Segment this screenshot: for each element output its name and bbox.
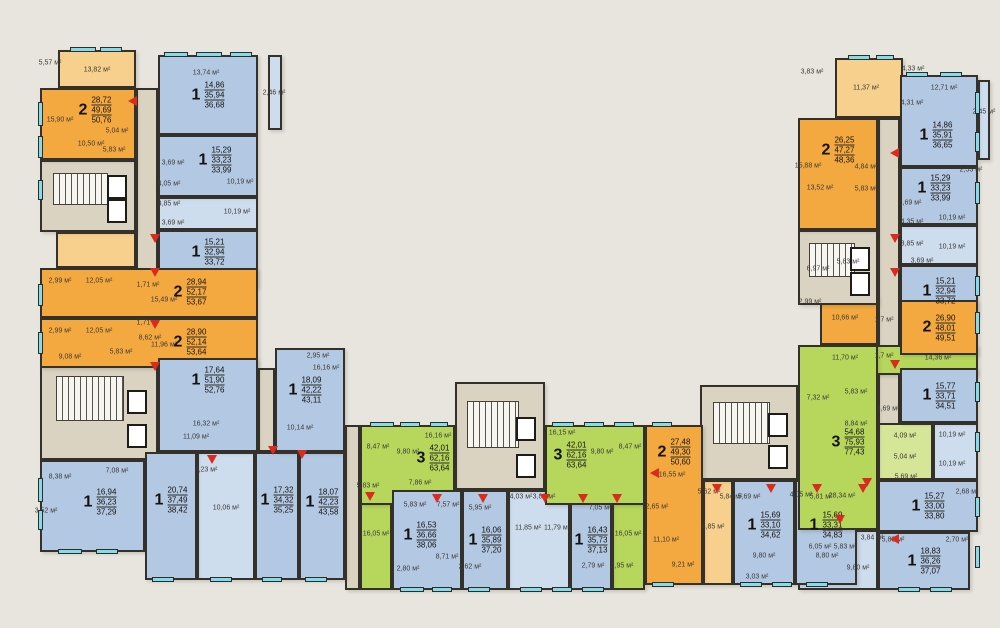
room-area-label: 5,83 м² <box>404 502 427 509</box>
window-strip <box>652 582 674 587</box>
apartment-label: 116,9436,2337,29 <box>84 488 117 517</box>
apartment-label: 115,2933,2333,99 <box>918 174 951 203</box>
apartment-room-count: 1 <box>192 86 201 104</box>
room-area-label: 3,03 м² <box>746 574 769 581</box>
apartment-area-value: 28,72 <box>91 96 111 105</box>
apartment-areas: 17,3234,3235,25 <box>273 486 293 515</box>
apartment-areas: 28,7249,6950,76 <box>91 96 111 125</box>
elevator-icon <box>850 272 870 296</box>
apartment-area-value: 34,83 <box>822 530 842 540</box>
room-area-label: 3,69 м² <box>911 258 934 265</box>
room-area-label: 4,31 м² <box>901 100 924 107</box>
apartment-area-value: 50,76 <box>91 115 111 125</box>
apartment-area-value: 35,89 <box>481 535 501 545</box>
window-strip <box>432 587 452 592</box>
room-area-label: 11,37 м² <box>853 85 879 92</box>
apartment-area-value: 27,48 <box>670 438 690 447</box>
room-area-label: 3,85 м² <box>901 241 924 248</box>
apartment-room-count: 2 <box>174 333 183 351</box>
window-strip <box>652 422 672 427</box>
room-area-label: 2,99 м² <box>799 299 822 306</box>
window-strip <box>975 312 980 334</box>
apartment-room-count: 1 <box>920 126 929 144</box>
apartment-area-value: 35,73 <box>587 535 607 545</box>
apartment-area-value: 36,66 <box>416 530 436 540</box>
apartment-area-value: 42,23 <box>318 497 338 507</box>
entrance-arrow-icon <box>890 268 900 277</box>
room-area-label: 13,74 м² <box>193 70 220 77</box>
window-strip <box>614 422 634 427</box>
apartment-areas: 27,4849,3050,60 <box>670 438 690 467</box>
entrance-arrow-icon <box>812 484 822 493</box>
apartment-label: 116,0635,8937,20 <box>469 526 502 555</box>
room-area-label: 8,38 м² <box>49 474 72 481</box>
apartment-area-value: 18,09 <box>301 376 321 385</box>
apartment-area-value: 15,27 <box>924 492 944 501</box>
apartment-area-value: 48,01 <box>935 322 955 332</box>
window-strip <box>38 180 43 200</box>
room-area-label: 3,69 м² <box>877 406 900 413</box>
apartment-label: 228,7249,6950,76 <box>79 96 112 125</box>
apartment-area-value: 26,25 <box>834 136 854 145</box>
apartment-areas: 42,0162,1663,64 <box>429 444 449 473</box>
room-area-label: 8,62 м² <box>139 335 162 342</box>
room-area-label: 4,85 м² <box>702 524 725 531</box>
apartment-area-value: 32,94 <box>204 247 224 257</box>
room-area-label: 16,16 м² <box>313 365 340 372</box>
entrance-arrow-icon <box>150 320 160 329</box>
apartment-areas: 54,6875,9377,43 <box>844 428 864 457</box>
room-area-label: 5,04 м² <box>894 454 917 461</box>
apartment-area-value: 38,06 <box>416 540 436 550</box>
window-strip <box>975 92 980 114</box>
apartment-areas: 15,2933,2333,99 <box>211 146 231 175</box>
apartment-area-value: 77,43 <box>844 447 864 457</box>
room-area-label: 4,84 м² <box>855 164 878 171</box>
elevator-icon <box>768 413 788 437</box>
window-strip <box>740 582 762 587</box>
apartment-area-value: 52,14 <box>186 337 206 347</box>
apartment-areas: 15,6933,1034,62 <box>760 511 780 540</box>
apartment-label: 114,8635,9136,65 <box>920 121 953 150</box>
entrance-arrow-icon <box>835 515 845 524</box>
apartment-label: 115,6933,1034,62 <box>748 511 781 540</box>
window-strip <box>552 587 572 592</box>
room-area-label: 14,36 м² <box>925 355 952 362</box>
apartment-room-count: 1 <box>289 381 298 399</box>
apartment-area-value: 28,90 <box>186 328 206 337</box>
window-strip <box>305 577 327 582</box>
window-strip <box>898 587 920 592</box>
window-strip <box>38 284 43 306</box>
elevator-icon <box>516 454 536 478</box>
room-area-label: 9,80 м² <box>753 553 776 560</box>
room-area-label: 10,19 м² <box>939 244 966 251</box>
apartment-area-value: 16,43 <box>587 526 607 535</box>
apartment-area-value: 15,77 <box>935 381 955 390</box>
apartment-area-value: 37,29 <box>96 507 116 517</box>
apartment-area-value: 63,64 <box>566 460 586 470</box>
apartment-area-value: 42,01 <box>429 444 449 453</box>
apartment-area-value: 36,26 <box>920 556 940 566</box>
room-area-label: 12,71 м² <box>931 85 958 92</box>
apartment-area-value: 28,94 <box>186 278 206 287</box>
apartment-area-value: 20,74 <box>167 486 187 495</box>
apartment-area-value: 18,83 <box>920 547 940 556</box>
room-area-label: 10,66 м² <box>832 315 859 322</box>
apartment-area-value: 52,17 <box>186 287 206 297</box>
apartment-area-value: 33,71 <box>935 390 955 400</box>
apartment-area-value: 37,07 <box>920 566 940 576</box>
apartment-area-value: 33,72 <box>935 296 955 306</box>
apartment-area-value: 34,51 <box>935 400 955 410</box>
apartment-room-count: 1 <box>306 493 315 511</box>
zone-block <box>258 368 275 452</box>
window-strip <box>468 587 490 592</box>
apartment-area-value: 48,36 <box>834 155 854 165</box>
apartment-area-value: 15,21 <box>935 277 955 286</box>
apartment-label: 115,2132,9433,72 <box>192 238 225 267</box>
apartment-label: 342,0162,1663,64 <box>417 444 450 473</box>
apartment-area-value: 54,68 <box>844 428 864 437</box>
window-strip <box>38 136 43 158</box>
entrance-arrow-icon <box>150 362 160 371</box>
room-area-label: 8,80 м² <box>816 553 839 560</box>
apartment-area-value: 16,06 <box>481 526 501 535</box>
apartment-room-count: 1 <box>923 282 932 300</box>
room-area-label: 6,97 м² <box>807 266 830 273</box>
apartment-area-value: 42,01 <box>566 441 586 450</box>
apartment-areas: 15,2132,9433,72 <box>204 238 224 267</box>
apartment-room-count: 1 <box>908 552 917 570</box>
apartment-1-room-unit-9[interactable] <box>145 452 197 580</box>
room-area-label: 10,19 м² <box>939 432 966 439</box>
apartment-area-value: 53,67 <box>186 297 206 307</box>
apartment-areas: 26,9048,0149,51 <box>935 313 955 342</box>
window-strip <box>975 276 980 296</box>
apartment-area-value: 36,68 <box>204 100 224 110</box>
window-strip <box>584 422 604 427</box>
apartment-label: 118,0742,2343,58 <box>306 488 339 517</box>
room-area-label: 4,09 м² <box>894 433 917 440</box>
room-area-label: 2,46 м² <box>263 90 286 97</box>
apartment-areas: 17,6451,9052,76 <box>204 366 224 395</box>
apartment-area-value: 32,94 <box>935 286 955 296</box>
apartment-area-value: 33,10 <box>760 520 780 530</box>
apartment-room-count: 2 <box>658 443 667 461</box>
apartment-area-value: 33,72 <box>204 257 224 267</box>
stairs-icon <box>467 401 519 449</box>
room-area-label: 9,21 м² <box>672 562 695 569</box>
apartment-label: 116,5336,6638,06 <box>404 521 437 550</box>
apartment-area-value: 33,00 <box>924 501 944 511</box>
apartment-area-value: 34,62 <box>760 530 780 540</box>
apartment-area-value: 34,32 <box>273 495 293 505</box>
apartment-area-value: 33,23 <box>930 183 950 193</box>
room-area-label: 2,68 м² <box>956 489 979 496</box>
apartment-label: 116,4335,7337,13 <box>575 526 608 555</box>
entrance-arrow-icon <box>766 484 776 493</box>
apartment-room-count: 1 <box>84 493 93 511</box>
apartment-label: 228,9052,1453,64 <box>174 328 207 357</box>
apartment-room-count: 1 <box>575 531 584 549</box>
apartment-area-value: 15,21 <box>204 238 224 247</box>
apartment-area-value: 33,23 <box>211 155 231 165</box>
apartment-room-count: 2 <box>923 319 932 337</box>
elevator-icon <box>107 175 127 199</box>
room-area-label: 5,83 м² <box>110 349 133 356</box>
stair-core <box>40 160 136 232</box>
room-area-label: 5,04 м² <box>106 128 129 135</box>
apartment-area-value: 33,99 <box>930 193 950 203</box>
apartment-area-value: 15,29 <box>930 174 950 183</box>
entrance-arrow-icon <box>540 494 550 503</box>
room-area-label: 16,05 м² <box>615 531 642 538</box>
apartment-room-count: 1 <box>912 497 921 515</box>
entrance-arrow-icon <box>862 478 872 487</box>
room-area-label: 11,09 м² <box>183 434 209 441</box>
apartment-area-value: 33,99 <box>211 165 231 175</box>
window-strip <box>38 102 43 126</box>
apartment-areas: 18,0742,2343,58 <box>318 488 338 517</box>
room-area-label: 7,08 м² <box>106 468 129 475</box>
apartment-label: 120,7437,4938,42 <box>155 486 188 515</box>
stairs-icon <box>56 376 124 421</box>
room-area-label: 1,71 м² <box>137 282 160 289</box>
apartment-areas: 14,8635,9136,65 <box>932 121 952 150</box>
apartment-label: 228,9452,1753,67 <box>174 278 207 307</box>
apartment-label: 354,6875,9377,43 <box>832 428 865 457</box>
apartment-area-value: 47,27 <box>834 145 854 155</box>
window-strip <box>38 332 43 354</box>
room-area-label: 3,85 м² <box>158 201 181 208</box>
apartment-area-value: 49,51 <box>935 332 955 342</box>
room-area-label: 4,35 м² <box>901 219 924 226</box>
apartment-label: 117,6451,9052,76 <box>192 366 225 395</box>
apartment-room-count: 1 <box>192 371 201 389</box>
window-strip <box>975 132 980 152</box>
room-area-label: 11,10 м² <box>653 537 679 544</box>
room-area-label: 9,08 м² <box>59 354 82 361</box>
room-area-label: 2,65 м² <box>646 504 669 511</box>
room-area-label: 8,47 м² <box>367 444 390 451</box>
room-area-label: 12,05 м² <box>86 278 113 285</box>
window-strip <box>164 52 188 57</box>
apartment-areas: 16,9436,2337,29 <box>96 488 116 517</box>
elevator-icon <box>107 199 127 223</box>
entrance-arrow-icon <box>365 492 375 501</box>
window-strip <box>196 52 222 57</box>
room-area-label: 7,86 м² <box>409 480 432 487</box>
window-strip <box>370 422 394 427</box>
room-area-label: 9,80 м² <box>847 565 870 572</box>
apartment-area-value: 36,65 <box>932 140 952 150</box>
apartment-label: 118,0942,2243,11 <box>289 376 322 405</box>
entrance-arrow-icon <box>712 484 722 493</box>
room-area-label: 5,83 м² <box>103 147 126 154</box>
apartment-room-count: 1 <box>923 387 932 405</box>
apartment-area-value: 33,80 <box>924 511 944 521</box>
room-area-label: 7,05 м² <box>589 505 612 512</box>
room-area-label: 15,88 м² <box>795 163 822 170</box>
room-area-label: 2,70 м² <box>946 537 969 544</box>
room-area-label: 9,80 м² <box>591 449 614 456</box>
entrance-arrow-icon <box>890 148 899 158</box>
room-area-label: 13,52 м² <box>807 185 834 192</box>
apartment-area-value: 15,29 <box>211 146 231 155</box>
apartment-room-count: 1 <box>748 516 757 534</box>
room-area-label: 10,19 м² <box>939 215 966 222</box>
room-area-label: 16,15 м² <box>549 430 576 437</box>
apartment-label: 115,7733,7134,51 <box>923 381 956 410</box>
room-area-label: 2,80 м² <box>397 566 420 573</box>
room-area-label: 13,82 м² <box>84 67 111 74</box>
apartment-room-count: 3 <box>832 433 841 451</box>
apartment-area-value: 49,69 <box>91 105 111 115</box>
apartment-areas: 28,9452,1753,67 <box>186 278 206 307</box>
window-strip <box>582 587 604 592</box>
stair-core <box>455 382 545 490</box>
entrance-arrow-icon <box>297 450 307 459</box>
window-strip <box>975 497 980 517</box>
room-area-label: 16,32 м² <box>193 421 220 428</box>
room-area-label: 28,34 м² <box>829 493 856 500</box>
apartment-label: 118,8336,2637,07 <box>908 547 941 576</box>
apartment-room-count: 2 <box>79 101 88 119</box>
window-strip <box>210 577 232 582</box>
apartment-area-value: 63,64 <box>429 463 449 473</box>
stair-core <box>40 358 158 460</box>
window-strip <box>975 546 980 568</box>
apartment-areas: 42,0162,1663,64 <box>566 441 586 470</box>
window-strip <box>400 587 424 592</box>
room-area-label: 1,7 м² <box>875 317 894 324</box>
entrance-arrow-icon <box>890 234 900 243</box>
apartment-area-value: 43,58 <box>318 507 338 517</box>
room-area-label: 5,83 м² <box>855 186 878 193</box>
room-area-label: 16,05 м² <box>363 531 390 538</box>
entrance-arrow-icon <box>150 234 160 243</box>
zone-block <box>508 490 570 590</box>
apartment-areas: 18,0942,2243,11 <box>301 376 321 405</box>
room-area-label: 11,85 м² <box>515 525 541 532</box>
window-strip <box>552 422 574 427</box>
apartment-area-value: 17,64 <box>204 366 224 375</box>
room-area-label: 3,69 м² <box>162 220 185 227</box>
apartment-area-value: 51,90 <box>204 375 224 385</box>
apartment-areas: 14,8635,9436,68 <box>204 81 224 110</box>
window-strip <box>58 549 82 554</box>
apartment-label: 114,8635,9436,68 <box>192 81 225 110</box>
room-area-label: 5,69 м² <box>895 474 918 481</box>
room-area-label: 8,84 м² <box>845 421 868 428</box>
apartment-areas: 20,7437,4938,42 <box>167 486 187 515</box>
apartment-room-count: 1 <box>192 243 201 261</box>
elevator-icon <box>127 390 147 414</box>
window-strip <box>806 582 828 587</box>
room-area-label: 8,47 м² <box>619 444 642 451</box>
apartment-room-count: 2 <box>822 141 831 159</box>
apartment-areas: 28,9052,1453,64 <box>186 328 206 357</box>
apartment-area-value: 35,91 <box>932 130 952 140</box>
window-strip <box>230 52 252 57</box>
room-area-label: 2,95 м² <box>611 563 634 570</box>
room-area-label: 1,7 м² <box>875 353 894 360</box>
window-strip <box>152 577 174 582</box>
window-strip <box>520 587 542 592</box>
window-strip <box>38 478 43 502</box>
apartment-room-count: 1 <box>155 491 164 509</box>
window-strip <box>906 72 928 77</box>
apartment-area-value: 62,16 <box>429 453 449 463</box>
apartment-area-value: 38,42 <box>167 505 187 515</box>
stairs-icon <box>713 402 770 444</box>
room-area-label: 16,55 м² <box>659 472 686 479</box>
window-strip <box>975 182 980 204</box>
stairs-icon <box>53 173 108 205</box>
apartment-areas: 16,0635,8937,20 <box>481 526 501 555</box>
apartment-areas: 16,4335,7337,13 <box>587 526 607 555</box>
room-area-label: 8,71 м² <box>436 554 459 561</box>
apartment-area-value: 75,93 <box>844 437 864 447</box>
window-strip <box>400 422 420 427</box>
room-area-label: 5,83 м² <box>845 389 868 396</box>
apartment-room-count: 1 <box>469 531 478 549</box>
entrance-arrow-icon <box>207 455 217 464</box>
apartment-area-value: 50,60 <box>670 457 690 467</box>
elevator-icon <box>127 424 147 448</box>
room-area-label: 5,57 м² <box>39 60 62 67</box>
apartment-area-value: 14,86 <box>932 121 952 130</box>
room-area-label: 2,62 м² <box>459 564 482 571</box>
apartment-1-room-unit-10[interactable] <box>255 452 299 580</box>
apartment-2-room-unit-5[interactable] <box>40 268 258 318</box>
zone-block <box>360 500 392 590</box>
window-strip <box>848 55 870 60</box>
apartment-room-count: 1 <box>810 516 819 534</box>
apartment-area-value: 17,32 <box>273 486 293 495</box>
apartment-area-value: 49,30 <box>670 447 690 457</box>
apartment-area-value: 16,94 <box>96 488 116 497</box>
room-area-label: 3,84 м² <box>861 535 884 542</box>
apartment-room-count: 3 <box>417 449 426 467</box>
room-area-label: 15,90 м² <box>47 117 74 124</box>
entrance-arrow-icon <box>478 494 488 503</box>
window-strip <box>430 422 448 427</box>
apartment-area-value: 26,90 <box>935 313 955 322</box>
apartment-areas: 16,5336,6638,06 <box>416 521 436 550</box>
room-area-label: 2,95 м² <box>307 353 330 360</box>
room-area-label: 10,19 м² <box>939 461 966 468</box>
floor-plan: 228,7249,6950,76114,8635,9436,68115,2933… <box>0 0 1000 628</box>
apartment-area-value: 53,64 <box>186 347 206 357</box>
apartment-areas: 15,2733,0033,80 <box>924 492 944 521</box>
elevator-icon <box>516 417 536 441</box>
apartment-room-count: 1 <box>261 491 270 509</box>
entrance-arrow-icon <box>268 446 278 455</box>
apartment-areas: 26,2547,2748,36 <box>834 136 854 165</box>
apartment-room-count: 1 <box>199 151 208 169</box>
entrance-arrow-icon <box>612 494 622 503</box>
apartment-area-value: 14,86 <box>204 81 224 90</box>
apartment-area-value: 37,20 <box>481 545 501 555</box>
window-strip <box>772 582 792 587</box>
entrance-arrow-icon <box>650 468 659 478</box>
apartment-areas: 18,8336,2637,07 <box>920 547 940 576</box>
window-strip <box>262 577 282 582</box>
room-area-label: 16,16 м² <box>425 433 452 440</box>
stair-core <box>700 385 798 480</box>
